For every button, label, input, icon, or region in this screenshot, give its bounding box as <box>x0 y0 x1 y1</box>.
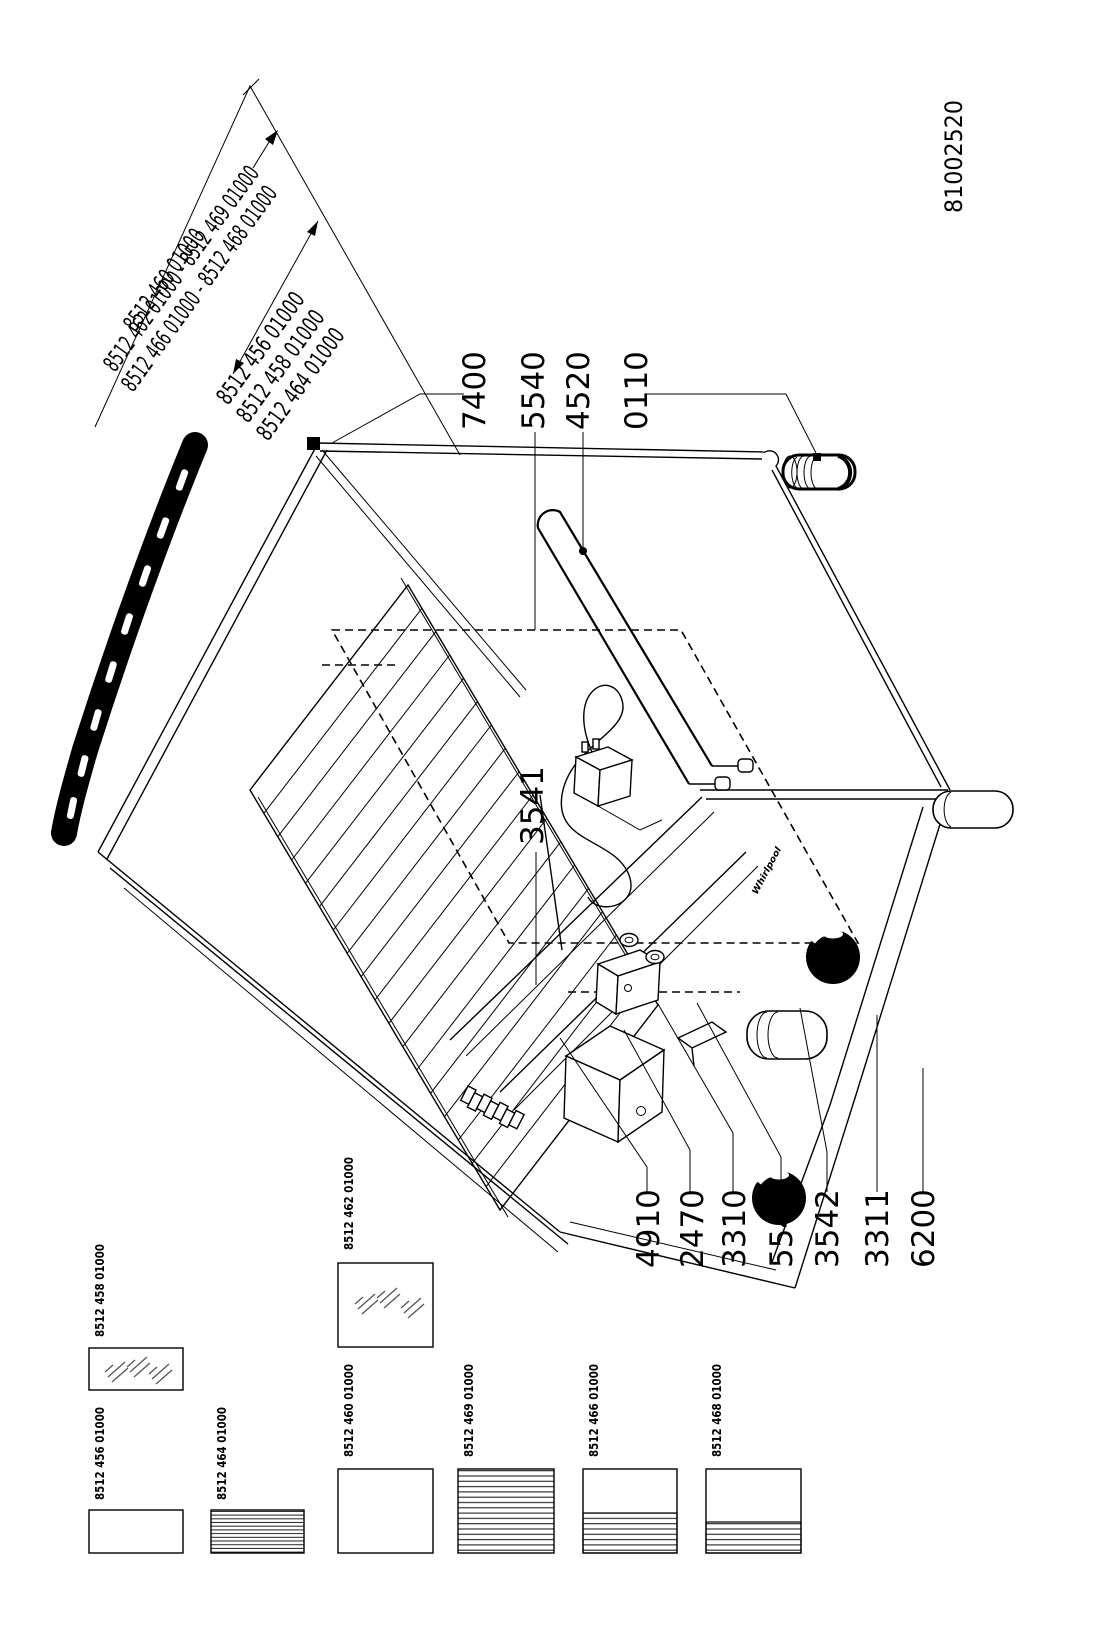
parts-diagram-figure: 8512 460 01000 8512 462 01000 - 8512 469… <box>0 0 1100 1647</box>
callout-7400: 7400 <box>457 351 493 430</box>
thumbnail-8512-466: 8512 466 01000 <box>583 1364 677 1553</box>
thumb-label-464: 8512 464 01000 <box>214 1407 229 1500</box>
callout-3310: 3310 <box>717 1189 753 1268</box>
thumb-label-466: 8512 466 01000 <box>586 1364 601 1457</box>
callout-6200: 6200 <box>906 1189 942 1268</box>
front-trim <box>64 445 195 833</box>
callout-5541: 5541 <box>764 1189 800 1268</box>
callout-3542: 3542 <box>810 1189 846 1268</box>
dashed-liner-outline <box>322 630 858 992</box>
doc-number: 81002520 <box>940 100 968 213</box>
thumbnail-8512-458: 8512 458 01000 <box>89 1244 183 1390</box>
thumb-label-458: 8512 458 01000 <box>92 1244 107 1337</box>
thumbnail-8512-469: 8512 469 01000 <box>458 1364 554 1553</box>
foot-cylinder-top <box>783 453 855 489</box>
thumb-label-469: 8512 469 01000 <box>461 1364 476 1457</box>
control-knob-upper <box>806 930 860 985</box>
thumbnail-8512-462: 8512 462 01000 <box>338 1157 433 1347</box>
callout-3311: 3311 <box>860 1189 896 1268</box>
callout-2470: 2470 <box>675 1189 711 1268</box>
brand-logo: Whirlpool <box>751 845 785 896</box>
thumbnail-8512-468: 8512 468 01000 <box>706 1364 801 1553</box>
variant-labels-group2: 8512 456 01000 8512 458 01000 8512 464 0… <box>212 287 351 445</box>
callout-3541: 3541 <box>515 766 551 845</box>
service-manual-page: 8512 460 01000 8512 462 01000 - 8512 469… <box>0 0 1100 1647</box>
thumbnail-8512-460: 8512 460 01000 <box>338 1364 433 1553</box>
callout-4910: 4910 <box>631 1189 667 1268</box>
foot-cylinder-bottom <box>747 1011 827 1059</box>
thumb-label-462: 8512 462 01000 <box>341 1157 356 1250</box>
callout-5540: 5540 <box>516 351 552 430</box>
selector-switch <box>596 934 664 1015</box>
heating-element <box>538 510 753 790</box>
thumb-label-468: 8512 468 01000 <box>709 1364 724 1457</box>
foot-cylinder-right <box>933 791 1013 828</box>
callout-0110: 0110 <box>619 351 655 430</box>
thumb-label-456: 8512 456 01000 <box>92 1407 107 1500</box>
callout-4520: 4520 <box>561 351 597 430</box>
thumbnail-8512-456: 8512 456 01000 <box>89 1407 183 1553</box>
thumbnail-8512-464: 8512 464 01000 <box>211 1407 304 1553</box>
main-drawing <box>98 437 950 1288</box>
ignition-box <box>564 1026 664 1142</box>
thumb-label-460: 8512 460 01000 <box>341 1364 356 1457</box>
variant-g1-line2: 8512 462 01000 - 8512 469 01000 <box>99 161 265 376</box>
